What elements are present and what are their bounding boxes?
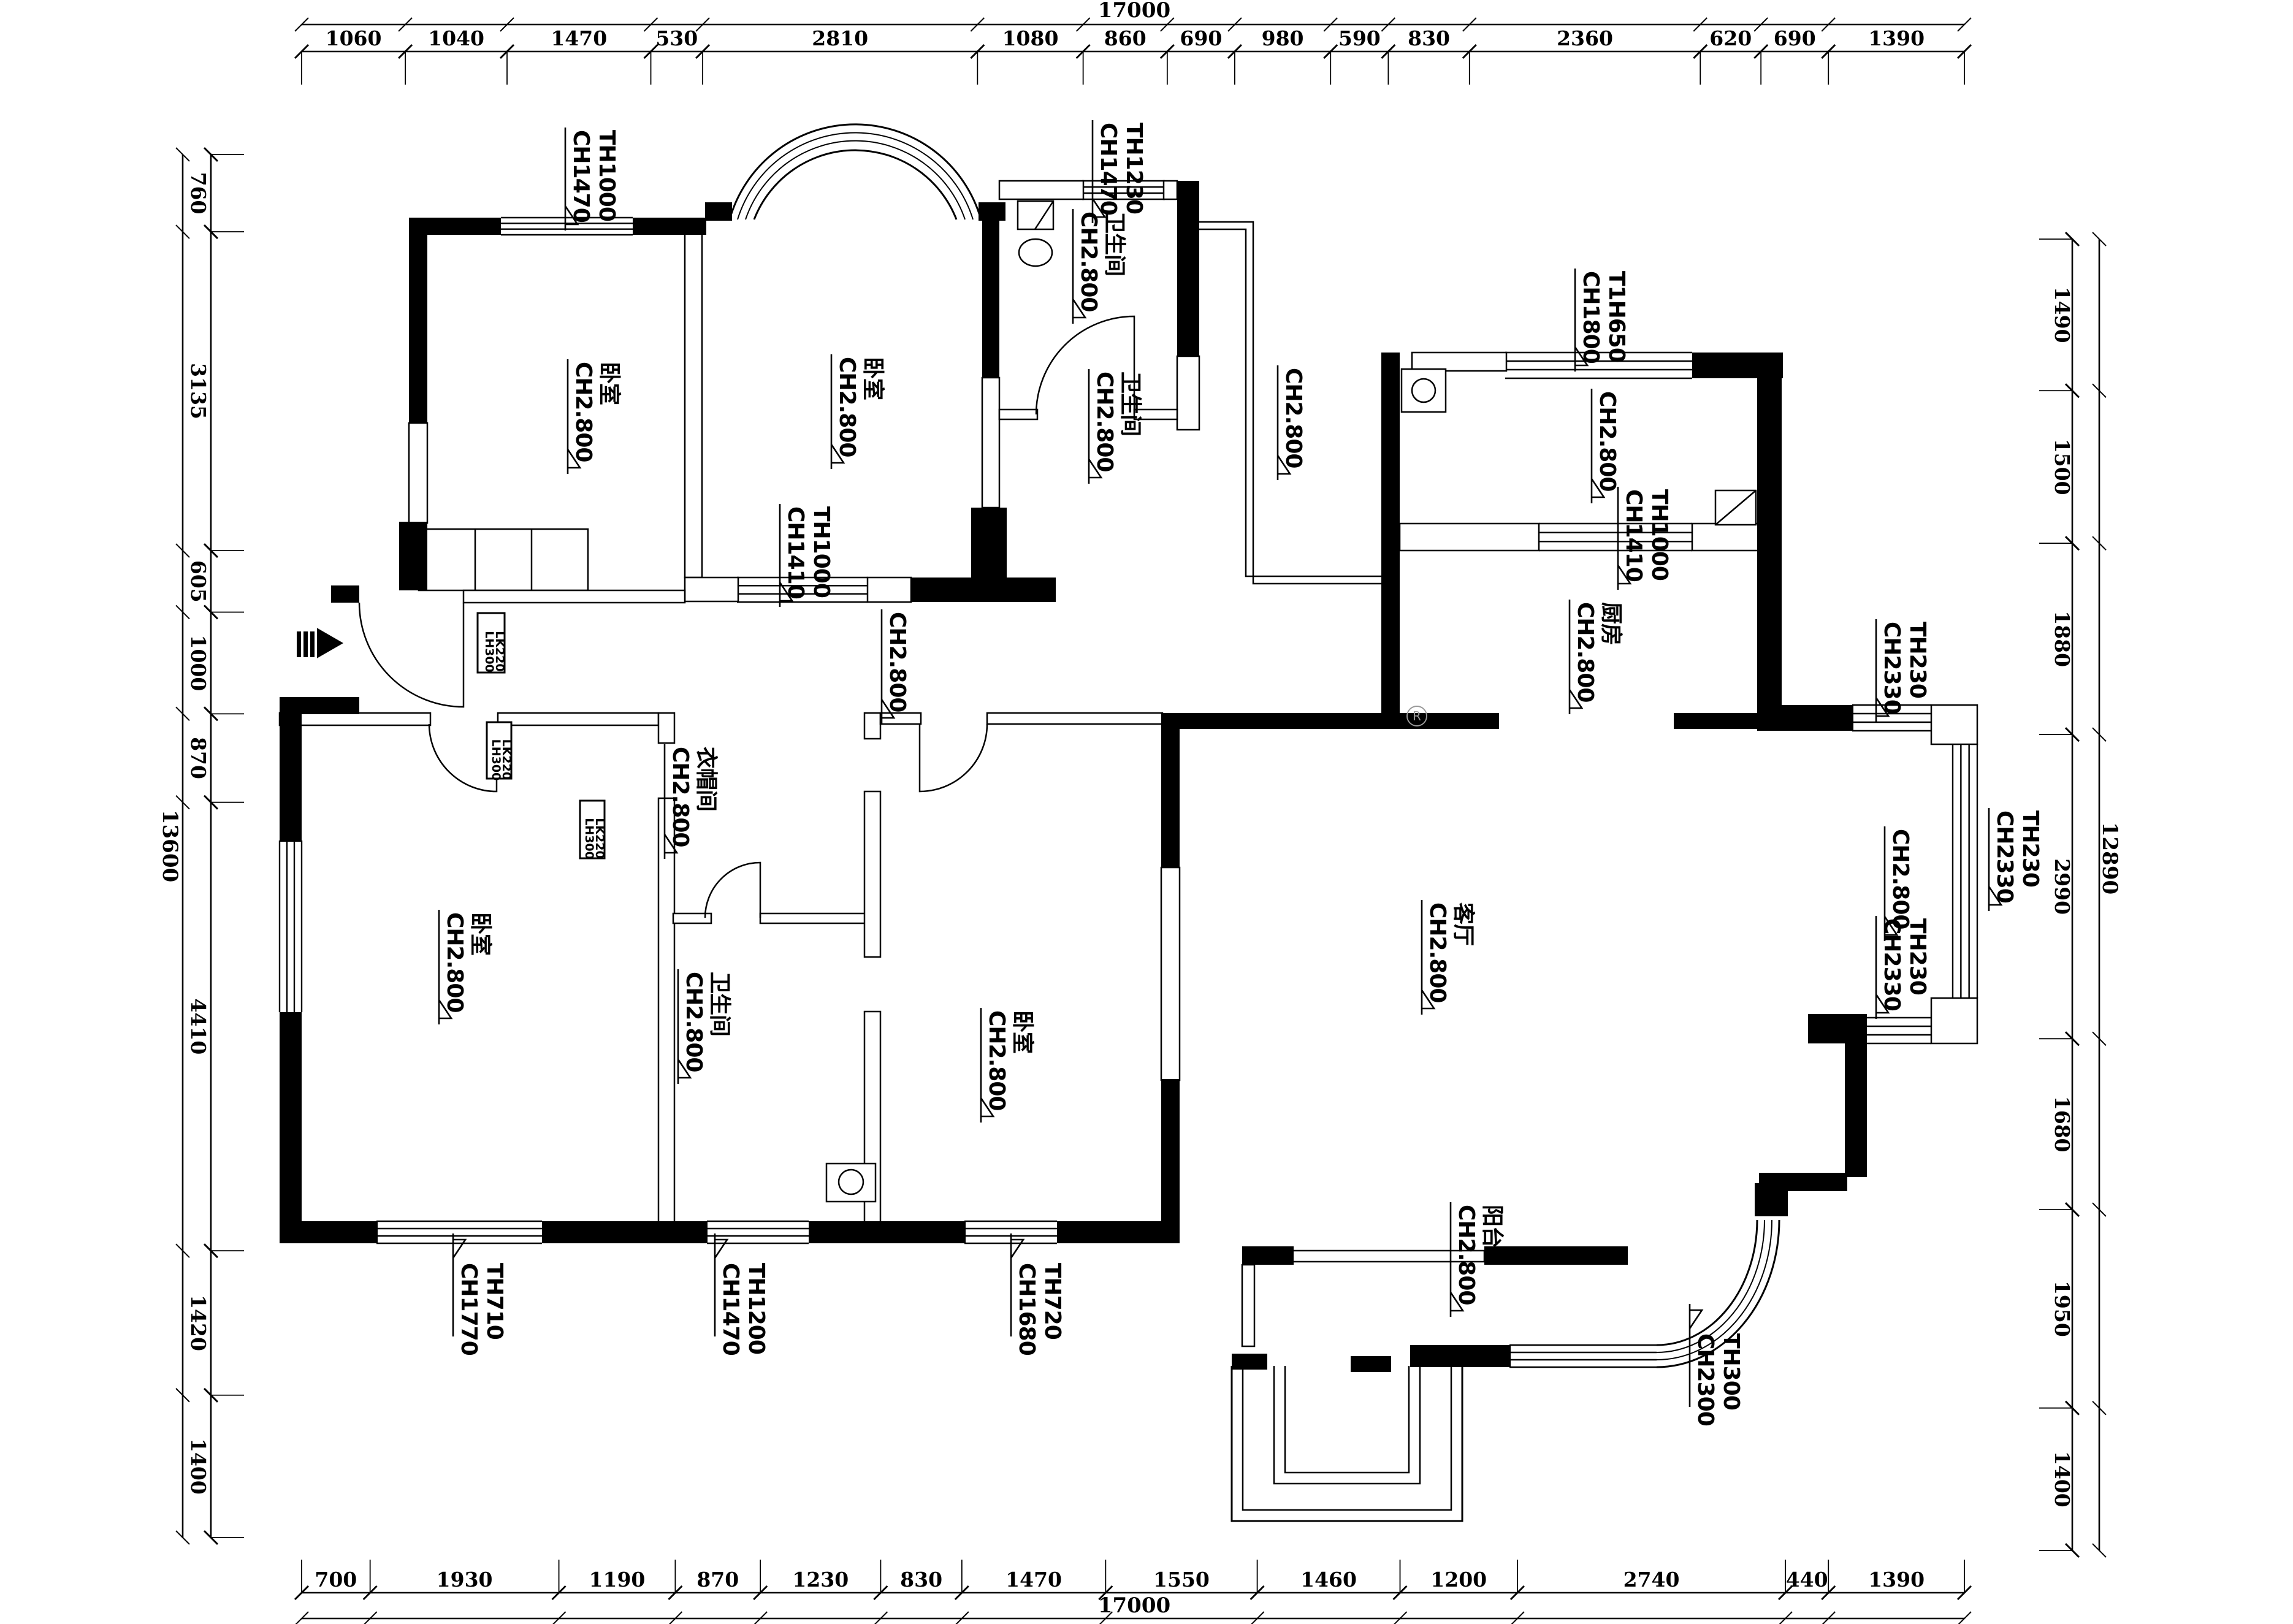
wall [1845, 1042, 1867, 1177]
wall [705, 202, 732, 221]
room-label-bedroom-2: 卧室CH2.800 [831, 354, 885, 469]
room-label-living: 客厅CH2.800 [1422, 900, 1476, 1015]
thin-wall [864, 713, 880, 739]
dim-left-value: 3135 [186, 363, 210, 419]
thin-wall [1161, 867, 1180, 1080]
hall-label-2: CH2.800 [882, 609, 910, 724]
plan-line [730, 124, 981, 219]
window-label-balcony-line2: CH2300 [1693, 1333, 1718, 1426]
dim-right-value: 1490 [2050, 287, 2074, 343]
window-label-bottom-3: TH720CH1680 [1011, 1233, 1065, 1355]
bay-label-line1: CH2.800 [1888, 829, 1913, 929]
hall-label-1: CH2.800 [1278, 365, 1306, 480]
dim-left-value: 760 [186, 172, 210, 215]
room-label-kitchen-line2: CH2.800 [1573, 602, 1598, 702]
hall-label-1-line1: CH2.800 [1281, 368, 1306, 468]
dim-right-value: 1680 [2050, 1096, 2074, 1153]
wall [1808, 1014, 1867, 1043]
dim-top-value: 2810 [812, 26, 868, 50]
thin-wall [685, 232, 702, 578]
thin-wall [868, 578, 911, 602]
dim-top-value: 830 [1408, 26, 1450, 50]
dim-bottom-value: 1200 [1430, 1568, 1487, 1592]
wall [399, 522, 427, 590]
floor-plan-canvas: RTH1000CH1470TH1230CH1470卫生间CH2.800卧室CH2… [0, 0, 2293, 1624]
window-label-bottom-1: TH710CH1770 [453, 1233, 507, 1355]
window-label-bedroom-2-line2: CH1410 [783, 506, 808, 599]
thin-wall [864, 791, 880, 957]
window-label-bay-right: TH230CH2330 [1989, 808, 2043, 911]
niche-label-2: LK220LH300 [489, 739, 513, 781]
thin-wall [987, 713, 1162, 724]
dim-right-value: 2990 [2050, 858, 2074, 915]
dim-left-value: 4410 [186, 999, 210, 1055]
window-label-bedroom-2: TH1000CH1410 [780, 504, 834, 607]
dim-bottom-value: 830 [900, 1568, 942, 1592]
dim-top-value: 2360 [1557, 26, 1613, 50]
thin-wall [1242, 1265, 1254, 1346]
room-label-bedroom-4: 卧室CH2.800 [981, 1008, 1035, 1123]
thin-wall [1412, 353, 1506, 371]
wall [542, 1221, 708, 1243]
window-label-service-line1: T1H650 [1604, 271, 1629, 362]
niche-label-line2: LH300 [582, 818, 596, 860]
window-label-bottom-2: TH1200CH1470 [715, 1233, 769, 1355]
window-label-bottom-3-line1: TH720 [1040, 1263, 1065, 1340]
room-label-bedroom-2-line1: 卧室 [860, 357, 885, 400]
room-label-bedroom-4-line1: 卧室 [1010, 1010, 1035, 1053]
wall [280, 1221, 378, 1243]
room-label-bath-upper: 卫生间CH2.800 [1073, 209, 1127, 324]
dim-bottom-value: 700 [315, 1568, 357, 1592]
wall [1057, 1221, 1177, 1243]
thin-wall [658, 713, 674, 743]
registered-icon: R [1413, 709, 1421, 723]
dim-bottom-total: 17000 [1098, 1593, 1170, 1618]
thin-wall [685, 578, 738, 601]
dim-top-value: 860 [1104, 26, 1146, 50]
room-label-cloakroom-line1: 衣帽间 [693, 747, 719, 811]
room-label-living-line2: CH2.800 [1425, 902, 1450, 1002]
thin-wall [419, 529, 588, 590]
window-label-topleft-line1: TH1000 [594, 130, 619, 221]
thin-wall [760, 913, 866, 923]
window-label-bottom-2-line1: TH1200 [744, 1263, 769, 1354]
plan-line [754, 150, 956, 219]
thin-wall [658, 798, 674, 1242]
wall [310, 631, 315, 657]
room-label-kitchen-line1: 厨房 [1598, 602, 1623, 645]
room-label-balcony-line1: 阳台 [1479, 1205, 1505, 1248]
dim-left-value: 605 [186, 560, 210, 603]
thin-wall [1931, 705, 1977, 744]
dim-top-value: 690 [1180, 26, 1222, 50]
thin-wall [1018, 201, 1053, 229]
thin-wall [1931, 998, 1977, 1043]
dim-right-value: 1500 [2050, 439, 2074, 495]
dim-bottom-value: 2740 [1623, 1568, 1680, 1592]
dim-top-value: 590 [1338, 26, 1381, 50]
room-label-bedroom-4-line2: CH2.800 [984, 1010, 1009, 1110]
plan-line [746, 141, 965, 219]
room-label-bedroom-1: 卧室CH2.800 [568, 359, 622, 474]
dim-right-value: 1950 [2050, 1281, 2074, 1337]
thin-wall [409, 423, 427, 523]
hall-label-2-line1: CH2.800 [885, 612, 910, 712]
plan-line [1285, 1366, 1409, 1473]
thin-wall [982, 378, 999, 508]
dim-left-value: 870 [186, 737, 210, 779]
window-label-bedroom-2-line1: TH1000 [809, 506, 834, 598]
room-label-bath-upper-line2: CH2.800 [1076, 212, 1101, 311]
dim-top-value: 1390 [1868, 26, 1925, 50]
dim-top-value: 1040 [428, 26, 484, 50]
window-label-balcony-line1: TH300 [1719, 1333, 1744, 1410]
wall [1757, 705, 1853, 731]
wall [297, 631, 301, 657]
wall [280, 713, 302, 842]
dim-right-value: 1880 [2050, 611, 2074, 667]
window-label-topmid-line1: TH1230 [1121, 123, 1146, 214]
window-label-bay-bottom-line1: TH230 [1905, 918, 1930, 995]
window-label-topleft: TH1000CH1470 [565, 128, 619, 231]
dim-top-value: 620 [1709, 26, 1752, 50]
window-label-kitchen-line1: TH1000 [1647, 489, 1672, 581]
niche-label-line2: LH300 [489, 739, 503, 781]
thin-wall [1402, 369, 1446, 412]
wall [1161, 1079, 1180, 1243]
room-label-kitchen: 厨房CH2.800 [1570, 600, 1623, 714]
window-label-bay-right-line1: TH230 [2018, 810, 2043, 887]
wall [280, 697, 359, 714]
dim-bottom-value: 1930 [437, 1568, 493, 1592]
dim-top-total: 17000 [1098, 0, 1170, 23]
room-label-bath-lower-line2: CH2.800 [681, 972, 706, 1072]
wall [971, 508, 1007, 579]
thin-wall [1164, 181, 1177, 199]
room-label-bedroom-1-line1: 卧室 [597, 362, 622, 405]
plan-line [705, 863, 760, 918]
dim-bottom-value: 1190 [589, 1568, 646, 1592]
window-label-bay-top: TH230CH2330 [1876, 619, 1930, 722]
room-label-bedroom-3-line1: 卧室 [468, 912, 493, 955]
thin-wall [999, 410, 1037, 419]
room-label-bedroom-2-line2: CH2.800 [834, 357, 860, 457]
room-label-bedroom-1-line2: CH2.800 [571, 362, 596, 462]
wall [1484, 1246, 1628, 1265]
dim-bottom-value: 870 [696, 1568, 739, 1592]
dim-left-value: 1000 [186, 635, 210, 691]
room-label-bath-upper-line1: 卫生间 [1102, 212, 1127, 276]
room-label-bath-upper-2-line1: 卫生间 [1118, 372, 1143, 436]
window-label-bottom-1-line1: TH710 [482, 1263, 507, 1340]
thin-wall [280, 713, 430, 725]
window-label-bottom-3-line2: CH1680 [1014, 1263, 1039, 1355]
wall [809, 1221, 966, 1243]
room-label-balcony-line2: CH2.800 [1454, 1205, 1479, 1305]
room-label-living-line1: 客厅 [1451, 902, 1476, 945]
wall [982, 219, 999, 378]
service-label: CH2.800 [1592, 389, 1620, 503]
dim-right-total: 12890 [2097, 822, 2122, 894]
wall [1242, 1246, 1294, 1265]
wall [1410, 1345, 1511, 1367]
window-label-bay-top-line2: CH2330 [1879, 622, 1904, 714]
wall [1232, 1354, 1267, 1370]
wall [1381, 353, 1400, 729]
wall [280, 1012, 302, 1243]
dim-top-value: 1060 [326, 26, 382, 50]
window-label-topmid-line2: CH1470 [1096, 123, 1121, 215]
dim-left-value: 1420 [186, 1295, 210, 1351]
dim-bottom-value: 440 [1786, 1568, 1828, 1592]
window-label-service: T1H650CH1800 [1575, 269, 1629, 372]
fixture-circle [1019, 239, 1052, 266]
thin-wall [464, 590, 685, 603]
room-label-cloakroom-line2: CH2.800 [668, 747, 693, 847]
dim-left-total: 13600 [158, 810, 182, 882]
dim-right-value: 1400 [2050, 1451, 2074, 1508]
dim-bottom-value: 1550 [1153, 1568, 1210, 1592]
wall [1755, 1183, 1788, 1216]
window-label-kitchen-line2: CH1410 [1621, 489, 1646, 582]
service-label-line1: CH2.800 [1595, 391, 1620, 491]
dim-top-value: 1470 [551, 26, 607, 50]
dim-bottom-value: 1390 [1868, 1568, 1925, 1592]
wall [633, 218, 706, 235]
dim-top-value: 530 [655, 26, 698, 50]
niche-label-3: LK220LH300 [582, 818, 606, 860]
room-label-bedroom-3-line2: CH2.800 [442, 912, 467, 1012]
room-label-bath-upper-2: 卫生间CH2.800 [1089, 369, 1143, 484]
dim-top-value: 980 [1262, 26, 1304, 50]
wall [1176, 713, 1384, 729]
thin-wall [864, 1012, 880, 1242]
room-label-bedroom-3: 卧室CH2.800 [439, 910, 493, 1024]
plan-line [920, 724, 987, 791]
window-label-topleft-line2: CH1470 [568, 130, 593, 223]
thin-wall [1692, 524, 1758, 551]
dim-bottom-value: 1460 [1300, 1568, 1357, 1592]
wall [1177, 181, 1199, 356]
room-label-bath-lower-line1: 卫生间 [707, 972, 732, 1036]
room-label-bath-lower: 卫生间CH2.800 [678, 969, 732, 1084]
wall [1351, 1356, 1391, 1372]
wall [1757, 353, 1782, 731]
window-label-bay-right-line2: CH2330 [1992, 810, 2017, 903]
plan-line [738, 132, 973, 219]
window-label-kitchen: TH1000CH1410 [1618, 487, 1672, 590]
window-label-bottom-2-line2: CH1470 [718, 1263, 743, 1355]
dim-top-value: 690 [1774, 26, 1816, 50]
room-label-cloakroom: 衣帽间CH2.800 [665, 744, 719, 859]
window-label-bottom-1-line2: CH1770 [456, 1263, 481, 1355]
plan-line [1657, 1220, 1765, 1352]
dim-bottom-value: 1230 [792, 1568, 849, 1592]
wall [409, 218, 427, 423]
dim-top-value: 1080 [1002, 26, 1059, 50]
window-label-bay-top-line1: TH230 [1905, 622, 1930, 698]
plan-line [1274, 1366, 1420, 1484]
niche-label-1: LK220LH300 [483, 631, 506, 673]
wall [331, 585, 359, 603]
wall [1161, 713, 1180, 867]
plan-line [359, 603, 464, 707]
niche-label-line2: LH300 [483, 631, 496, 673]
dim-left-value: 1400 [186, 1438, 210, 1495]
window-label-bay-bottom-line2: CH2330 [1879, 918, 1904, 1011]
window-label-bay-bottom: TH230CH2330 [1876, 916, 1930, 1019]
plan-line [318, 629, 342, 657]
wall [303, 631, 308, 657]
thin-wall [498, 713, 658, 725]
dim-bottom-value: 1470 [1005, 1568, 1062, 1592]
wall [911, 578, 1056, 602]
window-label-service-line2: CH1800 [1578, 271, 1603, 364]
window-label-topmid: TH1230CH1470 [1093, 120, 1146, 223]
wall [979, 202, 1005, 221]
floor-plan-page: RTH1000CH1470TH1230CH1470卫生间CH2.800卧室CH2… [0, 0, 2293, 1624]
plan-line [1232, 1366, 1462, 1521]
room-label-bath-upper-2-line2: CH2.800 [1092, 372, 1117, 471]
thin-wall [1177, 356, 1199, 430]
thin-wall [999, 181, 1083, 199]
thin-wall [1400, 524, 1539, 551]
